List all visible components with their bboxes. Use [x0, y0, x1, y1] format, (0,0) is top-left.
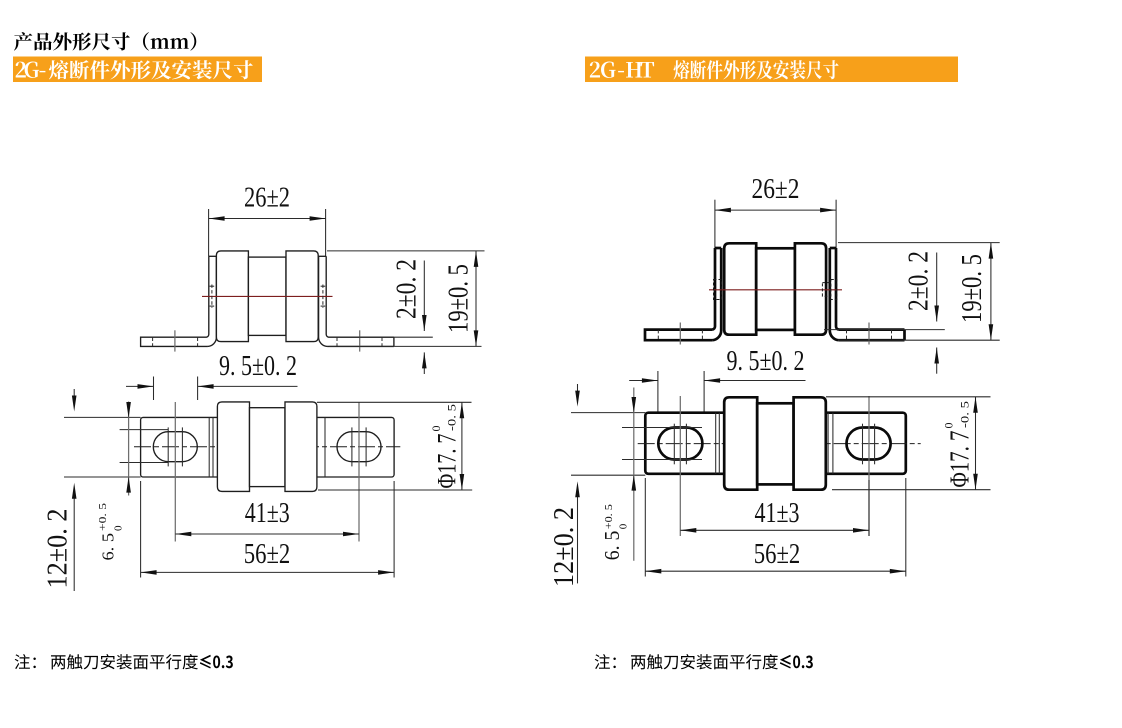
- svg-text:2±0. 2: 2±0. 2: [904, 251, 935, 311]
- svg-text:56±2: 56±2: [244, 539, 291, 570]
- svg-text:0: 0: [429, 426, 443, 432]
- svg-text:9. 5±0. 2: 9. 5±0. 2: [727, 346, 805, 377]
- svg-text:0: 0: [618, 523, 630, 529]
- svg-text:2±0. 2: 2±0. 2: [392, 259, 423, 319]
- svg-text:26±2: 26±2: [752, 174, 800, 205]
- svg-text:19±0. 5: 19±0. 5: [957, 254, 988, 323]
- svg-text:26±2: 26±2: [244, 183, 290, 214]
- svg-text:6. 5: 6. 5: [99, 533, 118, 561]
- svg-text:+0. 5: +0. 5: [97, 502, 109, 531]
- svg-text:Φ17. 7: Φ17. 7: [433, 434, 462, 489]
- svg-text:+0. 5: +0. 5: [603, 504, 615, 530]
- svg-text:6. 5: 6. 5: [600, 531, 624, 561]
- svg-text:-0. 5: -0. 5: [445, 404, 459, 431]
- svg-text:-0. 5: -0. 5: [957, 401, 971, 428]
- svg-text:Φ17. 7: Φ17. 7: [944, 431, 974, 488]
- svg-text:0: 0: [941, 423, 955, 429]
- svg-text:0: 0: [113, 525, 125, 531]
- svg-text:9. 5±0. 2: 9. 5±0. 2: [219, 351, 297, 382]
- svg-text:12±0. 2: 12±0. 2: [42, 509, 73, 589]
- svg-text:41±3: 41±3: [755, 498, 800, 529]
- svg-text:19±0. 5: 19±0. 5: [444, 264, 475, 333]
- svg-text:56±2: 56±2: [754, 539, 801, 570]
- svg-text:41±3: 41±3: [245, 498, 290, 529]
- svg-text:12±0. 2: 12±0. 2: [549, 507, 580, 587]
